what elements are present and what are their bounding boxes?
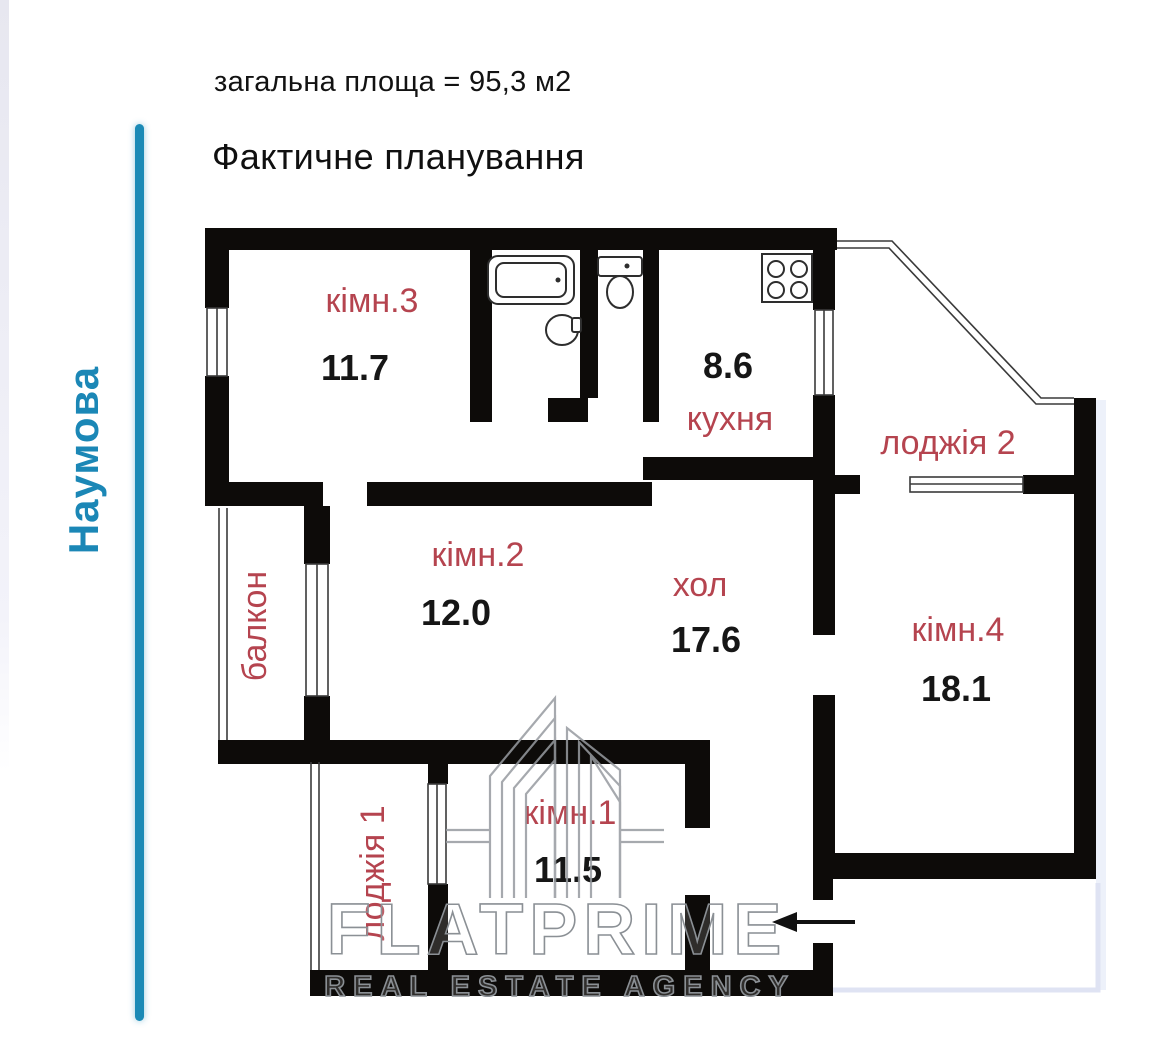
wall-loggia2-bottom-right: [1023, 475, 1074, 494]
page-left-edge: [0, 0, 9, 772]
street-accent-line: [135, 124, 144, 1021]
page-title: Фактичне планування: [212, 136, 585, 178]
wall-bath-stub: [548, 398, 588, 422]
wall-wc-kitchen: [643, 250, 659, 422]
wall-bath-wc: [580, 250, 598, 398]
wall-loggia2-bottom-left: [830, 475, 860, 494]
room2-area: 12.0: [421, 592, 491, 633]
room3-label: кімн.3: [326, 282, 419, 320]
wall-hall-room4-lower: [813, 695, 835, 853]
wall-balcony-right-lower: [304, 696, 330, 742]
room4-area: 18.1: [921, 668, 991, 709]
total-area-text: загальна площа = 95,3 м2: [214, 66, 572, 99]
wall-kitchen-bottom: [643, 457, 818, 480]
wall-right-outer: [1074, 398, 1096, 879]
hall-area: 17.6: [671, 619, 741, 660]
wall-entry-upper: [813, 853, 833, 900]
toilet-icon: [598, 257, 642, 308]
wall-kitchen-loggia2-upper: [813, 250, 835, 310]
loggia2-label: лоджія 2: [880, 424, 1015, 462]
wall-room4-bottom: [818, 853, 1096, 879]
wall-loggia1-stub-top: [428, 764, 448, 784]
wall-balcony-right-upper: [304, 506, 330, 564]
wall-hall-room4-upper: [813, 395, 835, 635]
wall-room3-bottom-right: [367, 482, 652, 506]
watermark-tagline: REAL ESTATE AGENCY: [324, 971, 796, 1003]
wall-left-upper: [205, 228, 229, 308]
kitchen-area: 8.6: [703, 345, 753, 386]
floor-plan: кімн.3 11.7 8.6 кухня лоджія 2 кімн.2 12…: [200, 228, 1110, 1008]
flatprime-logo-icon: [446, 698, 664, 898]
wall-entry-lower: [813, 943, 833, 970]
street-name-label: Наумова: [60, 366, 108, 554]
room3-area: 11.7: [321, 347, 389, 388]
wall-room1-top: [218, 740, 700, 764]
hall-label: хол: [673, 566, 728, 604]
sink-icon: [546, 315, 581, 345]
wall-left-mid: [205, 376, 229, 484]
room4-label: кімн.4: [912, 611, 1005, 649]
kitchen-label: кухня: [687, 400, 773, 438]
stove-icon: [762, 254, 812, 302]
bathtub-icon: [488, 256, 574, 304]
loggia2-glazing-inner: [837, 248, 1074, 404]
room2-label: кімн.2: [432, 536, 525, 574]
room1-label: кімн.1: [524, 794, 617, 832]
watermark-brand: FLATPRIME: [327, 890, 788, 970]
wall-top: [205, 228, 837, 250]
wall-room1-right-upper: [685, 740, 710, 828]
wall-room3-bottom-left: [205, 482, 323, 506]
balcony-label: балкон: [236, 571, 274, 681]
